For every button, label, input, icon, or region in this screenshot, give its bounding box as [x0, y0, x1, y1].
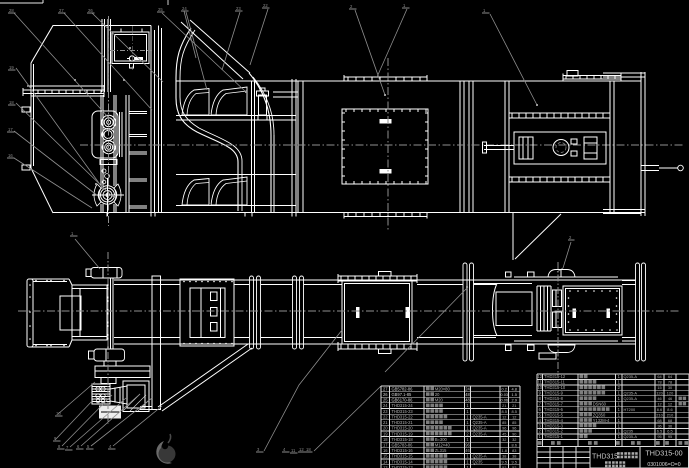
- svg-text:18: 18: [9, 100, 14, 105]
- svg-text:GB6170-86: GB6170-86: [392, 398, 414, 403]
- svg-text:ZL315: ZL315: [435, 448, 447, 453]
- svg-text:27: 27: [59, 8, 64, 13]
- svg-text:B=300: B=300: [435, 437, 448, 442]
- svg-text:46: 46: [465, 448, 470, 453]
- svg-text:Q235-A: Q235-A: [473, 431, 487, 436]
- svg-text:THD315-00: THD315-00: [645, 449, 682, 458]
- svg-text:10: 10: [56, 411, 61, 416]
- svg-text:120: 120: [667, 391, 674, 396]
- svg-text:78: 78: [668, 380, 672, 385]
- svg-text:38: 38: [502, 454, 506, 459]
- svg-text:12: 12: [668, 401, 672, 406]
- svg-text:THD315-3: THD315-3: [544, 423, 564, 428]
- svg-text:24: 24: [465, 386, 470, 391]
- svg-text:THD315-4: THD315-4: [544, 418, 564, 423]
- svg-text:15: 15: [657, 385, 661, 390]
- svg-text:18: 18: [383, 437, 388, 442]
- svg-text:19: 19: [9, 65, 14, 70]
- svg-text:9.5: 9.5: [512, 459, 517, 464]
- svg-text:THD315: THD315: [592, 453, 618, 460]
- svg-text:6.5: 6.5: [657, 429, 662, 434]
- svg-text:85: 85: [502, 420, 506, 425]
- svg-text:THD315-1: THD315-1: [544, 434, 564, 439]
- svg-text:8.6: 8.6: [667, 407, 672, 412]
- svg-text:23: 23: [236, 6, 241, 11]
- svg-text:DSN60: DSN60: [593, 401, 607, 406]
- svg-text:Q235-A: Q235-A: [473, 454, 487, 459]
- svg-text:11: 11: [291, 448, 296, 453]
- svg-text:20: 20: [435, 392, 440, 397]
- svg-text:THD315-6: THD315-6: [544, 407, 564, 412]
- svg-text:Q235-A: Q235-A: [473, 420, 487, 425]
- svg-text:THD315-16: THD315-16: [392, 448, 414, 453]
- svg-text:THD315-9: THD315-9: [544, 391, 564, 396]
- svg-text:GB5783-86: GB5783-86: [392, 443, 414, 448]
- svg-text:38: 38: [512, 454, 516, 459]
- svg-text:THD315-24: THD315-24: [392, 403, 414, 408]
- svg-text:24: 24: [383, 403, 388, 408]
- svg-text:Q235-A: Q235-A: [473, 414, 487, 419]
- svg-text:THD315-8: THD315-8: [544, 396, 564, 401]
- svg-text:1.5: 1.5: [512, 392, 517, 397]
- svg-text:83: 83: [512, 448, 516, 453]
- svg-text:12: 12: [537, 374, 542, 379]
- svg-text:36: 36: [657, 423, 661, 428]
- svg-text:27: 27: [383, 386, 388, 391]
- svg-text:THD315-7: THD315-7: [544, 401, 564, 406]
- svg-text:Q235: Q235: [473, 459, 484, 464]
- svg-text:THD315-22: THD315-22: [392, 414, 414, 419]
- svg-text:25: 25: [383, 398, 388, 403]
- svg-text:32: 32: [512, 437, 516, 442]
- svg-text:Q235-A: Q235-A: [624, 396, 638, 401]
- svg-text:M20: M20: [435, 398, 444, 403]
- svg-text:95: 95: [668, 434, 672, 439]
- svg-text:48: 48: [465, 398, 470, 403]
- svg-text:85: 85: [512, 420, 516, 425]
- svg-text:24: 24: [182, 6, 187, 11]
- svg-text:M12×40: M12×40: [435, 443, 451, 448]
- svg-text:12: 12: [299, 447, 304, 452]
- svg-text:4.8: 4.8: [512, 386, 517, 391]
- svg-text:8.5: 8.5: [512, 409, 517, 414]
- svg-text:95: 95: [657, 434, 661, 439]
- svg-text:THD315-20: THD315-20: [392, 426, 414, 431]
- svg-text:12: 12: [657, 401, 661, 406]
- svg-text:25: 25: [158, 7, 163, 12]
- svg-text:GB97.1-85: GB97.1-85: [392, 392, 413, 397]
- svg-text:96: 96: [502, 426, 506, 431]
- svg-text:96: 96: [465, 443, 470, 448]
- svg-text:17: 17: [8, 127, 13, 132]
- svg-text:68: 68: [657, 418, 661, 423]
- svg-text:Q235-A: Q235-A: [624, 374, 638, 379]
- svg-text:0.06: 0.06: [500, 398, 508, 403]
- svg-text:45: 45: [502, 431, 506, 436]
- svg-text:22: 22: [383, 414, 388, 419]
- svg-text:M20×80: M20×80: [435, 386, 451, 391]
- svg-text:ZQ350: ZQ350: [593, 412, 606, 417]
- svg-text:36: 36: [668, 423, 672, 428]
- svg-text:8.6: 8.6: [512, 443, 517, 448]
- svg-text:28: 28: [9, 8, 14, 13]
- svg-text:8.5: 8.5: [502, 409, 507, 414]
- svg-text:2.9: 2.9: [512, 398, 517, 403]
- svg-text:46: 46: [657, 396, 661, 401]
- svg-text:23: 23: [383, 409, 388, 414]
- svg-text:22: 22: [263, 3, 268, 8]
- svg-text:11: 11: [538, 380, 543, 385]
- svg-text:21: 21: [512, 403, 516, 408]
- svg-text:21: 21: [502, 403, 506, 408]
- svg-text:96: 96: [512, 426, 516, 431]
- svg-text:10: 10: [537, 385, 542, 390]
- svg-text:GB5782-86: GB5782-86: [392, 386, 414, 391]
- svg-text:0301006=O=0: 0301006=O=0: [647, 462, 680, 468]
- svg-text:THD315-19: THD315-19: [392, 431, 414, 436]
- svg-text:12: 12: [502, 414, 506, 419]
- svg-text:46: 46: [668, 396, 672, 401]
- svg-text:8.6: 8.6: [657, 407, 662, 412]
- svg-text:Q235-A: Q235-A: [624, 434, 638, 439]
- svg-text:Q235: Q235: [624, 429, 634, 434]
- svg-text:19: 19: [383, 431, 388, 436]
- svg-text:THD315-15: THD315-15: [392, 454, 414, 459]
- svg-text:THD315-23: THD315-23: [392, 409, 414, 414]
- svg-text:15: 15: [383, 454, 388, 459]
- svg-text:0.03: 0.03: [500, 392, 508, 397]
- svg-text:16: 16: [8, 153, 13, 158]
- svg-text:THD315-5: THD315-5: [544, 412, 564, 417]
- svg-text:12: 12: [512, 414, 516, 419]
- svg-text:16: 16: [383, 448, 388, 453]
- svg-text:14: 14: [383, 459, 388, 464]
- svg-text:20: 20: [383, 426, 388, 431]
- svg-text:THD315-21: THD315-21: [392, 420, 414, 425]
- svg-text:26: 26: [383, 392, 388, 397]
- svg-text:Q235-A: Q235-A: [473, 426, 487, 431]
- svg-text:THD315-11: THD315-11: [544, 380, 566, 385]
- svg-text:78: 78: [657, 380, 661, 385]
- svg-text:THD315-14: THD315-14: [392, 459, 414, 464]
- svg-text:THD315-12: THD315-12: [544, 374, 566, 379]
- svg-text:48: 48: [465, 392, 470, 397]
- svg-text:68: 68: [668, 418, 672, 423]
- svg-text:32: 32: [502, 437, 506, 442]
- svg-text:26: 26: [88, 8, 93, 13]
- svg-text:210: 210: [656, 412, 663, 417]
- svg-text:0.2: 0.2: [502, 386, 507, 391]
- svg-text:THD315-18: THD315-18: [392, 437, 414, 442]
- svg-text:HT200: HT200: [624, 407, 637, 412]
- svg-text:Q235-A: Q235-A: [624, 391, 638, 396]
- svg-text:6.5: 6.5: [667, 429, 672, 434]
- svg-text:18: 18: [306, 447, 311, 452]
- svg-text:21: 21: [383, 420, 388, 425]
- svg-text:210: 210: [667, 412, 674, 417]
- svg-text:THD315-10: THD315-10: [544, 385, 566, 390]
- svg-text:9.5: 9.5: [502, 459, 507, 464]
- svg-text:Y132M-4: Y132M-4: [593, 418, 610, 423]
- svg-text:1.8: 1.8: [502, 448, 507, 453]
- svg-text:17: 17: [383, 443, 388, 448]
- svg-text:120: 120: [656, 391, 663, 396]
- svg-text:THD315-2: THD315-2: [544, 429, 564, 434]
